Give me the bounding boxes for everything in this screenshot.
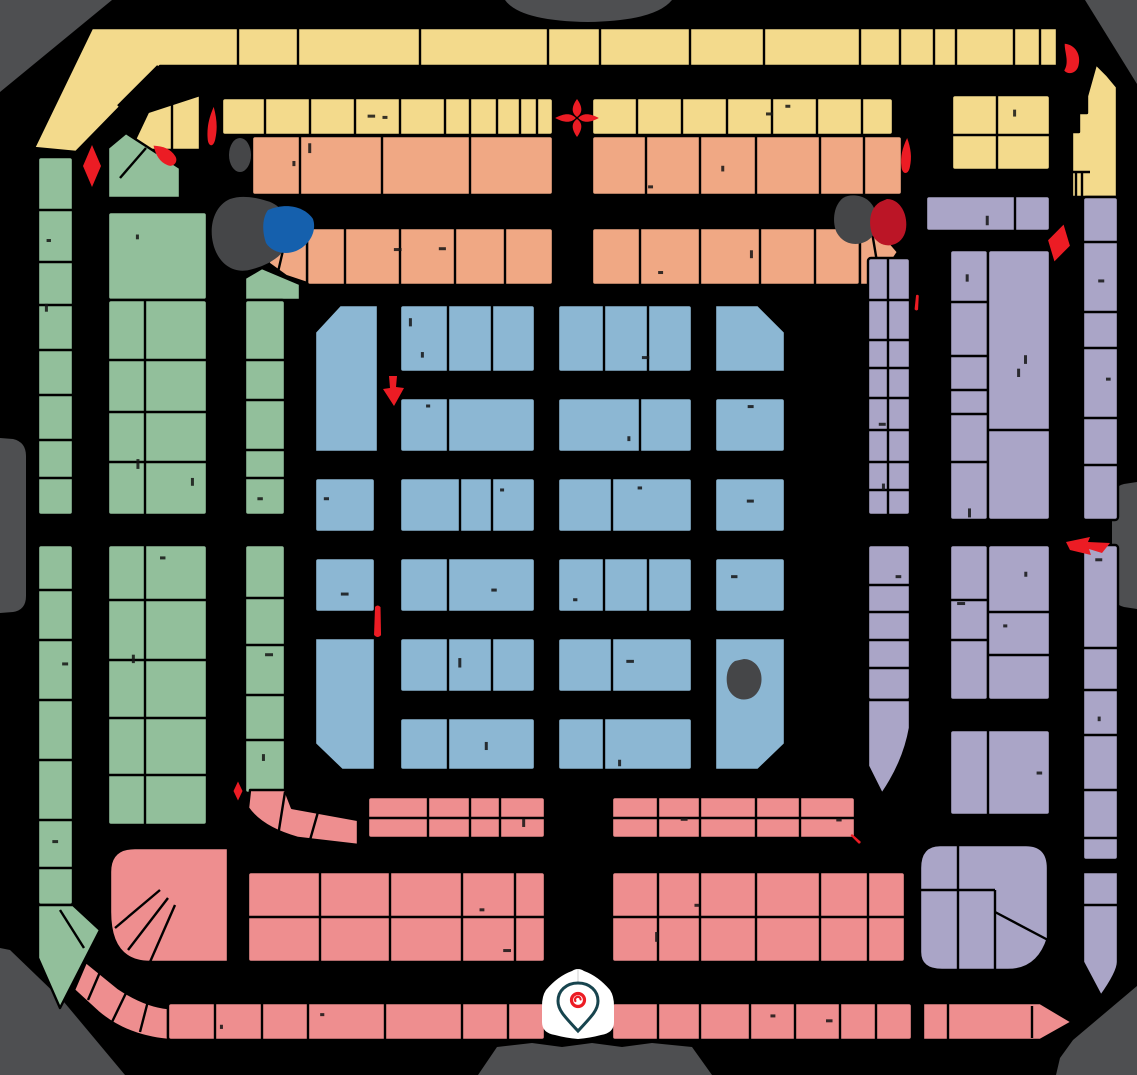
label-smudge <box>826 1019 833 1022</box>
store-block <box>868 545 910 700</box>
store-block <box>558 718 692 770</box>
label-smudge <box>1037 772 1043 775</box>
label-smudge <box>721 166 724 172</box>
store-block <box>315 638 375 770</box>
store-block <box>952 95 1050 170</box>
label-smudge <box>785 105 790 108</box>
label-smudge <box>642 356 649 359</box>
label-smudge <box>626 660 634 663</box>
label-smudge <box>136 459 139 469</box>
store-block <box>252 136 553 195</box>
store-block <box>715 558 785 612</box>
store-block <box>1083 545 1118 860</box>
store-block <box>400 718 535 770</box>
store-block <box>245 545 285 793</box>
label-smudge <box>320 1013 324 1016</box>
label-smudge <box>45 304 48 312</box>
store-block <box>315 305 378 452</box>
store-block <box>715 478 785 532</box>
label-smudge <box>341 593 349 596</box>
store-block <box>926 196 1050 231</box>
store-block <box>558 558 692 612</box>
store-block <box>110 848 228 962</box>
label-smudge <box>750 250 753 258</box>
label-smudge <box>770 1014 775 1017</box>
label-smudge <box>766 112 773 115</box>
store-block <box>715 638 785 770</box>
label-smudge <box>1095 558 1102 561</box>
label-smudge <box>1024 355 1027 364</box>
store-block <box>38 545 73 905</box>
label-smudge <box>191 478 194 486</box>
store-block <box>400 478 535 532</box>
label-smudge <box>681 818 688 821</box>
label-smudge <box>257 497 262 500</box>
label-smudge <box>648 185 653 188</box>
label-smudge <box>618 760 621 766</box>
label-smudge <box>694 904 699 907</box>
label-smudge <box>747 500 754 503</box>
label-smudge <box>879 423 886 426</box>
label-smudge <box>324 497 329 500</box>
store-block <box>400 305 535 372</box>
label-smudge <box>368 115 376 118</box>
label-smudge <box>439 247 446 250</box>
label-smudge <box>491 589 496 592</box>
store-block <box>988 250 1050 520</box>
label-smudge <box>160 556 165 559</box>
entrance-blob <box>727 659 762 700</box>
store-block <box>400 398 535 452</box>
label-smudge <box>748 405 754 408</box>
label-smudge <box>132 655 135 663</box>
store-block <box>558 478 692 532</box>
store-block <box>920 845 1048 970</box>
label-smudge <box>836 818 841 821</box>
entrance-blob <box>229 138 251 172</box>
label-smudge <box>47 239 51 242</box>
label-smudge <box>500 488 504 491</box>
label-smudge <box>1106 378 1111 381</box>
store-block <box>400 638 535 692</box>
label-smudge <box>485 742 488 750</box>
label-smudge <box>220 1025 223 1029</box>
store-block <box>592 136 902 195</box>
label-smudge <box>1098 717 1101 722</box>
store-block <box>923 1003 1072 1040</box>
store-block <box>108 212 207 300</box>
label-smudge <box>1013 110 1016 117</box>
store-block <box>108 545 207 825</box>
store-block <box>558 305 692 372</box>
label-smudge <box>986 216 989 225</box>
label-smudge <box>1098 279 1104 282</box>
store-block <box>400 558 535 612</box>
label-smudge <box>1003 624 1007 627</box>
store-block <box>558 398 692 452</box>
label-smudge <box>409 318 412 326</box>
label-smudge <box>627 436 630 441</box>
label-smudge <box>292 161 295 166</box>
label-smudge <box>655 932 658 942</box>
label-smudge <box>458 658 461 667</box>
store-block <box>168 1003 545 1040</box>
label-smudge <box>638 486 642 489</box>
label-smudge <box>52 840 58 843</box>
label-smudge <box>957 602 965 605</box>
label-smudge <box>136 235 139 240</box>
label-smudge <box>658 271 663 274</box>
label-smudge <box>265 653 273 656</box>
label-smudge <box>308 143 311 153</box>
label-smudge <box>573 598 577 601</box>
label-smudge <box>896 575 902 578</box>
outside-area <box>0 438 26 613</box>
label-smudge <box>426 404 430 407</box>
store-block <box>950 250 988 520</box>
label-smudge <box>421 352 424 358</box>
label-smudge <box>1017 369 1020 377</box>
store-block <box>1083 197 1118 520</box>
store-block <box>558 638 692 692</box>
label-smudge <box>62 662 68 665</box>
label-smudge <box>262 754 265 761</box>
store-block <box>315 478 375 532</box>
mall-map <box>0 0 1137 1075</box>
store-block <box>950 545 988 700</box>
label-smudge <box>522 819 525 827</box>
label-smudge <box>882 484 885 490</box>
mall-map-canvas <box>0 0 1137 1075</box>
label-smudge <box>480 908 485 911</box>
store-block <box>950 730 1050 815</box>
store-block <box>315 558 375 612</box>
label-smudge <box>731 575 737 578</box>
label-smudge <box>966 274 969 281</box>
label-smudge <box>1024 572 1027 577</box>
label-smudge <box>503 949 511 952</box>
store-block <box>222 98 553 135</box>
store-block <box>592 228 860 285</box>
outside-area <box>478 1043 712 1075</box>
store-block <box>245 300 285 515</box>
label-smudge <box>968 508 971 517</box>
label-smudge <box>394 248 402 251</box>
label-smudge <box>382 116 387 119</box>
store-block <box>988 545 1050 700</box>
